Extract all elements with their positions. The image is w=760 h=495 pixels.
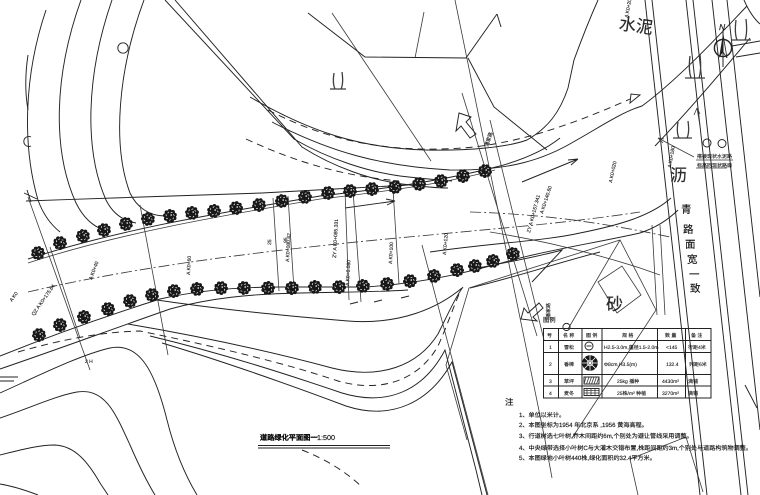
svg-text:满铺: 满铺 xyxy=(688,390,698,397)
svg-text:4430m²: 4430m² xyxy=(662,379,679,385)
svg-text:致: 致 xyxy=(690,283,701,295)
svg-text:25株/m² 种植: 25株/m² 种植 xyxy=(617,390,646,397)
svg-text:草坪: 草坪 xyxy=(564,378,574,385)
svg-text:Φ8cm,H3.5(m): Φ8cm,H3.5(m) xyxy=(604,362,637,368)
svg-text:2、本图坐标为1954 年北京系 ,1956 黄海高程。: 2、本图坐标为1954 年北京系 ,1956 黄海高程。 xyxy=(519,421,648,429)
svg-text:4、中央绿带选择小叶树C与大灌木交错布置,株距间距约3m,个: 4、中央绿带选择小叶树C与大灌木交错布置,株距间距约3m,个别处与道路构筑物调整… xyxy=(519,444,752,452)
svg-text:备 注: 备 注 xyxy=(691,332,702,339)
svg-text:1: 1 xyxy=(549,345,552,351)
svg-text:满铺: 满铺 xyxy=(688,378,698,385)
svg-text:路: 路 xyxy=(683,224,694,236)
svg-text:图例: 图例 xyxy=(543,316,556,324)
svg-text:A K0+100: A K0+100 xyxy=(388,242,395,264)
svg-text:1、单位以米计。: 1、单位以米计。 xyxy=(519,411,565,419)
svg-text:规 格: 规 格 xyxy=(622,332,633,339)
svg-text:一: 一 xyxy=(689,269,700,281)
svg-text:图 例: 图 例 xyxy=(586,332,597,339)
svg-text:列距6米: 列距6米 xyxy=(689,361,707,368)
svg-text:青: 青 xyxy=(681,204,692,216)
svg-text:雪松: 雪松 xyxy=(564,344,574,351)
svg-text:4: 4 xyxy=(549,391,552,397)
svg-text:注: 注 xyxy=(505,397,514,407)
svg-text:数 量: 数 量 xyxy=(665,332,676,339)
svg-text:3270m²: 3270m² xyxy=(662,391,679,397)
svg-text:潘家路: 潘家路 xyxy=(545,303,552,318)
svg-text:名 称: 名 称 xyxy=(563,332,574,339)
svg-text:2: 2 xyxy=(549,362,552,368)
svg-text:宽: 宽 xyxy=(687,254,698,266)
svg-text:H2.5-3.0m,蓬径1.5-2.0m: H2.5-3.0m,蓬径1.5-2.0m xyxy=(604,344,658,351)
svg-text:25: 25 xyxy=(267,239,273,245)
svg-text:3、行道树选七叶树,乔木间距约6m,个别处为避让管线采用调整: 3、行道树选七叶树,乔木间距约6m,个别处为避让管线采用调整。 xyxy=(519,432,693,440)
svg-text:3: 3 xyxy=(549,379,552,385)
svg-text:<145: <145 xyxy=(666,345,677,351)
svg-text:沥: 沥 xyxy=(670,166,687,185)
svg-text:行距4米: 行距4米 xyxy=(688,344,706,351)
svg-text:A K0+60: A K0+60 xyxy=(186,256,193,276)
svg-text:25kg 播种: 25kg 播种 xyxy=(617,378,639,385)
svg-text:搭接现状水泥路: 搭接现状水泥路 xyxy=(697,153,732,160)
svg-text:5、本图绿地小叶树440株,绿化面积约32.4平方米。: 5、本图绿地小叶树440株,绿化面积约32.4平方米。 xyxy=(519,454,656,462)
svg-text:95: 95 xyxy=(283,237,289,243)
svg-text:N: N xyxy=(719,22,726,32)
svg-text:号: 号 xyxy=(547,333,552,339)
svg-text:香樟: 香樟 xyxy=(564,361,574,368)
svg-text:132.4: 132.4 xyxy=(666,362,679,368)
svg-text:麦冬: 麦冬 xyxy=(564,390,574,397)
svg-text:面: 面 xyxy=(685,239,696,251)
svg-text:道路绿化平面图一: 道路绿化平面图一 xyxy=(260,433,318,442)
svg-text:1:500: 1:500 xyxy=(317,433,335,442)
svg-text:砂: 砂 xyxy=(606,295,623,314)
